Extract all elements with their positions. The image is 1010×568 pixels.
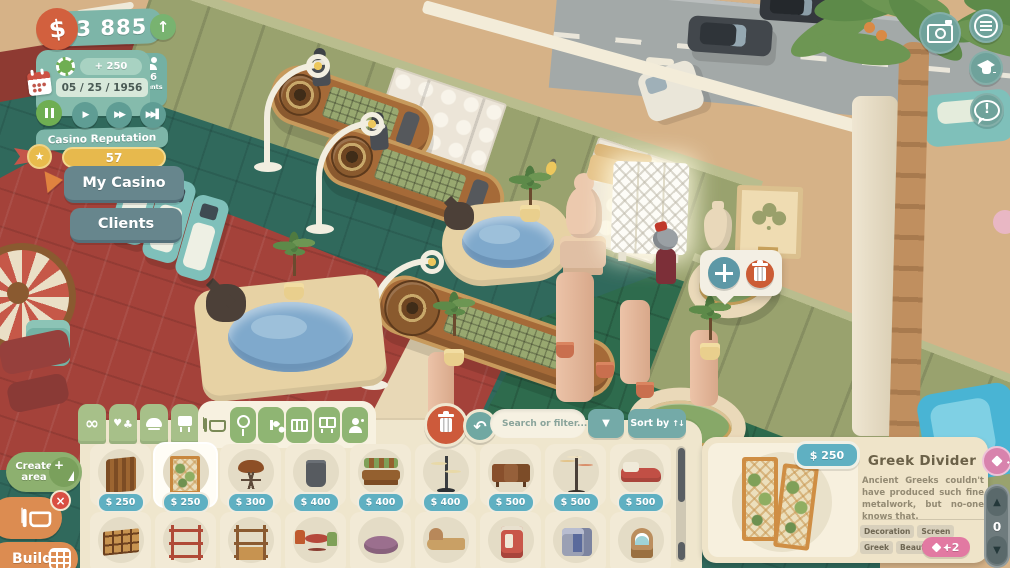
calendar-icon bbox=[27, 71, 53, 97]
infinity-icon bbox=[85, 416, 99, 433]
move-arrows-icon bbox=[715, 264, 733, 282]
delete-button[interactable] bbox=[746, 260, 774, 288]
subtab-walls[interactable] bbox=[286, 407, 312, 443]
tab-all[interactable] bbox=[78, 404, 106, 444]
item-cubby-shelf[interactable] bbox=[90, 512, 151, 568]
item-trash-can[interactable]: $ 400 bbox=[285, 444, 346, 506]
item-chaise[interactable] bbox=[415, 512, 476, 568]
tab-signs[interactable] bbox=[171, 404, 199, 444]
item-garden-bench[interactable]: $ 400 bbox=[350, 444, 411, 506]
tutorial-button[interactable] bbox=[969, 51, 1003, 85]
income-value: + 250 bbox=[95, 61, 128, 72]
wooden-shelf-thumb bbox=[228, 520, 274, 566]
jukebox-thumb bbox=[618, 520, 664, 566]
client-character[interactable] bbox=[656, 248, 676, 284]
stepper-value: 0 bbox=[984, 520, 1010, 534]
item-coat-stand[interactable]: $ 500 bbox=[545, 444, 606, 506]
cubby-shelf-thumb bbox=[98, 520, 144, 566]
item-jukebox[interactable] bbox=[610, 512, 671, 568]
statue-bust[interactable] bbox=[566, 186, 602, 238]
card-suits-icon bbox=[113, 419, 133, 430]
pink-prop bbox=[993, 210, 1010, 234]
selection-popup bbox=[700, 250, 782, 296]
items-scrollbar[interactable] bbox=[676, 446, 686, 562]
income-pill: + 250 bbox=[80, 58, 142, 75]
greek-divider-art bbox=[742, 457, 778, 541]
filter-dropdown-button[interactable]: ▼ bbox=[588, 409, 624, 438]
furniture-icon bbox=[204, 418, 226, 432]
feedback-button[interactable] bbox=[970, 93, 1004, 127]
bricks-icon bbox=[49, 548, 71, 568]
statue-pedestal bbox=[560, 236, 606, 268]
potted-plant[interactable] bbox=[432, 290, 476, 366]
skip-button[interactable]: ▶▶▌ bbox=[140, 102, 166, 128]
tab-services[interactable] bbox=[140, 404, 168, 444]
subtab-furniture[interactable] bbox=[202, 407, 228, 443]
tag: Greek bbox=[860, 541, 893, 554]
potted-plant[interactable] bbox=[272, 230, 316, 300]
reputation-value: 57 bbox=[106, 151, 123, 165]
create-area-button[interactable]: Create area bbox=[6, 452, 82, 492]
vending-machine-thumb bbox=[488, 520, 534, 566]
pause-icon bbox=[45, 108, 48, 118]
reputation-label: Casino Reputation bbox=[48, 131, 157, 146]
detail-price-badge: $ 250 bbox=[794, 441, 860, 469]
item-pouf[interactable] bbox=[350, 512, 411, 568]
item-floor-lamp[interactable]: $ 400 bbox=[415, 444, 476, 506]
skip-icon: ▶▶▌ bbox=[146, 110, 161, 120]
game-screen: 93 885 $ ↑ + 250 05 / 25 / 1956 ▶ ▶▶ ▶▶▌… bbox=[0, 0, 1010, 568]
beauty-button[interactable] bbox=[982, 446, 1010, 476]
fast-forward-icon: ▶▶ bbox=[114, 110, 124, 120]
table-set-thumb bbox=[293, 520, 339, 566]
trend-up-button[interactable]: ↑ bbox=[150, 14, 176, 40]
screen-icon bbox=[319, 417, 336, 433]
cloche-icon bbox=[146, 418, 162, 431]
item-wooden-shelf[interactable] bbox=[220, 512, 281, 568]
pin-icon bbox=[237, 415, 250, 436]
terracotta-pot[interactable] bbox=[596, 362, 614, 378]
date-value: 05 / 25 / 1956 bbox=[62, 82, 143, 94]
item-daybed[interactable]: $ 500 bbox=[610, 444, 671, 506]
item-greek-divider[interactable]: $ 250 bbox=[155, 444, 216, 506]
subtab-decor[interactable] bbox=[230, 407, 256, 443]
divider-line bbox=[862, 519, 984, 520]
play-button[interactable]: ▶ bbox=[72, 102, 98, 128]
feedback-bubble-icon bbox=[974, 100, 1000, 121]
search-input[interactable] bbox=[500, 418, 590, 430]
stepper-down-button[interactable]: ▼ bbox=[987, 536, 1007, 564]
item-sideboard[interactable]: $ 500 bbox=[480, 444, 541, 506]
fast-forward-button[interactable]: ▶▶ bbox=[106, 102, 132, 128]
menu-icon bbox=[974, 14, 998, 38]
reputation-coin-icon: ★ bbox=[27, 144, 52, 169]
item-plant-stand[interactable]: $ 300 bbox=[220, 444, 281, 506]
terracotta-pot[interactable] bbox=[636, 382, 654, 398]
tab-games[interactable] bbox=[109, 404, 137, 444]
item-vending-machine[interactable] bbox=[480, 512, 541, 568]
trash-icon bbox=[440, 418, 452, 432]
terracotta-pot[interactable] bbox=[556, 342, 574, 358]
create-area-icon bbox=[49, 457, 79, 487]
potted-plant[interactable] bbox=[508, 164, 552, 222]
camera-icon bbox=[927, 24, 953, 43]
staff-icon bbox=[349, 418, 362, 433]
item-preview: $ 250 bbox=[708, 443, 858, 557]
sparkle-icon bbox=[991, 455, 1002, 466]
reputation-meter: 57 bbox=[62, 147, 166, 168]
date-display: 05 / 25 / 1956 bbox=[56, 78, 148, 97]
column[interactable] bbox=[556, 272, 594, 402]
tag: Decoration bbox=[860, 525, 914, 538]
item-details-panel: $ 250 Greek Divider Ancient Greeks could… bbox=[702, 437, 988, 563]
red-shelf-thumb bbox=[163, 520, 209, 566]
item-red-shelf[interactable] bbox=[155, 512, 216, 568]
subtab-plants[interactable] bbox=[258, 407, 284, 443]
floor-level-stepper: ▲ 0 ▼ bbox=[984, 484, 1010, 568]
item-table-set[interactable] bbox=[285, 512, 346, 568]
subtab-screens[interactable] bbox=[314, 407, 340, 443]
item-title: Greek Divider bbox=[860, 453, 984, 469]
furniture-icon bbox=[23, 509, 52, 527]
sort-by-button[interactable]: Sort by ↑↓ bbox=[628, 409, 686, 438]
menu-button[interactable] bbox=[969, 9, 1003, 43]
item-description: Ancient Greeks couldn't have produced su… bbox=[862, 476, 984, 524]
beauty-bonus-badge: +2 bbox=[922, 537, 970, 557]
clients-button[interactable]: Clients bbox=[70, 208, 182, 243]
sparkle-icon bbox=[931, 542, 941, 552]
chaise-thumb bbox=[423, 520, 469, 566]
pouf-thumb bbox=[358, 520, 404, 566]
search-bar bbox=[490, 409, 586, 438]
subtab-staff[interactable] bbox=[342, 407, 368, 443]
close-build-button[interactable]: × bbox=[50, 490, 71, 511]
kiosk-thumb bbox=[553, 520, 599, 566]
pause-button[interactable] bbox=[36, 100, 62, 126]
play-icon: ▶ bbox=[83, 110, 88, 120]
my-casino-button[interactable]: My Casino bbox=[64, 166, 184, 203]
column[interactable] bbox=[620, 300, 650, 384]
sell-mode-button[interactable] bbox=[424, 403, 468, 447]
poker-chip-icon bbox=[56, 57, 75, 76]
chevron-down-icon: ▼ bbox=[602, 418, 610, 429]
plant-icon bbox=[270, 420, 273, 430]
graduation-cap-icon bbox=[975, 60, 997, 76]
sort-arrows-icon: ↑↓ bbox=[672, 419, 683, 428]
trash-icon bbox=[754, 267, 766, 281]
item-kiosk[interactable] bbox=[545, 512, 606, 568]
dollar-coin-icon: $ bbox=[36, 8, 78, 50]
pointer-arrow-icon bbox=[45, 169, 65, 193]
item-wooden-divider[interactable]: $ 250 bbox=[90, 444, 151, 506]
camera-button[interactable] bbox=[919, 12, 961, 54]
move-button[interactable] bbox=[708, 257, 740, 289]
stepper-up-button[interactable]: ▲ bbox=[987, 488, 1007, 516]
folding-map-icon bbox=[291, 419, 308, 432]
car-dark bbox=[687, 15, 773, 57]
sign-icon bbox=[178, 416, 192, 432]
build-button[interactable]: Build bbox=[0, 542, 78, 568]
clover-painting[interactable] bbox=[735, 185, 803, 259]
